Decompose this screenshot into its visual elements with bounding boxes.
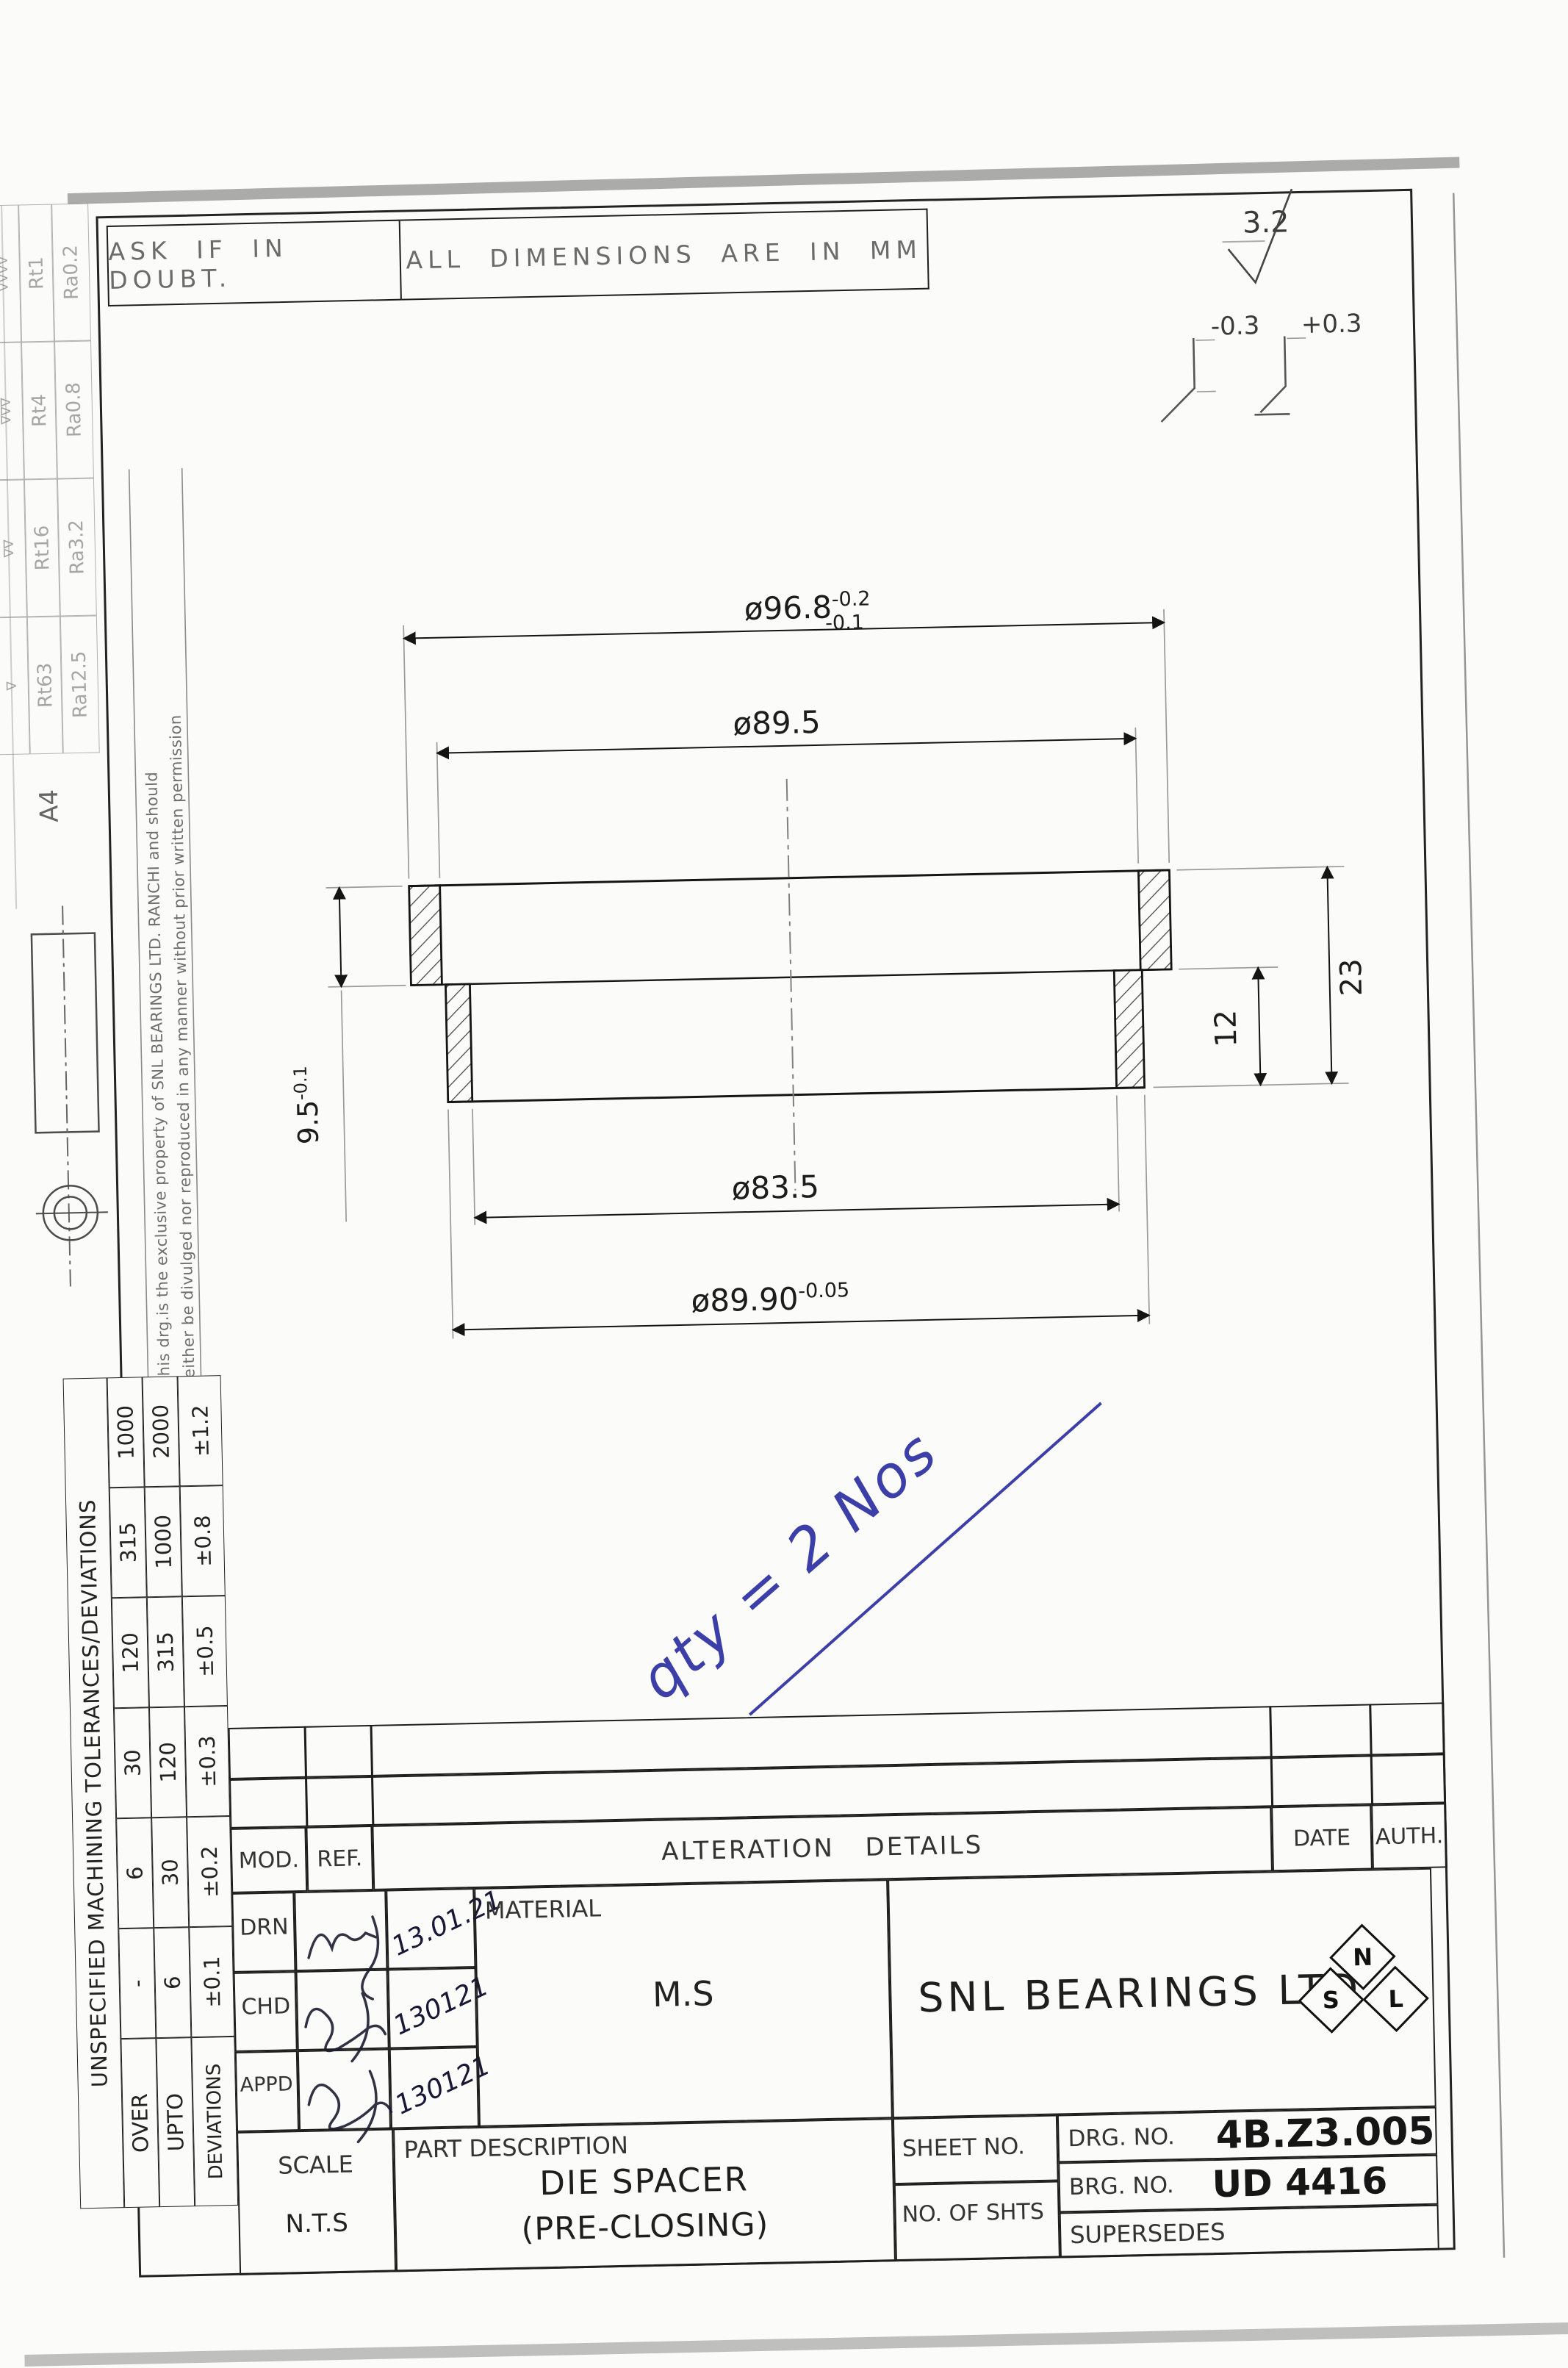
snl-logo: N S L	[1303, 1931, 1438, 2051]
sheet-size-label: A4	[34, 756, 65, 822]
tolerance-table: UNSPECIFIED MACHINING TOLERANCES/DEVIATI…	[63, 1375, 239, 2209]
sheet-no-cell: SHEET NO.	[893, 2114, 1059, 2184]
over-value: -	[118, 1928, 156, 2039]
rt-value: Rt4	[21, 342, 57, 480]
finish-mark: ∇∇∇∇	[0, 205, 21, 343]
chd-label: CHD	[241, 1993, 295, 2020]
over-value: 120	[112, 1597, 149, 1708]
scale-box: SCALE N.T.S	[237, 2128, 396, 2275]
logo-letter-s: S	[1323, 1986, 1340, 2014]
chd-date-cell: 130121	[387, 1967, 477, 2048]
ra-value: Ra3.2	[57, 478, 97, 616]
chd-signature-cell	[296, 1970, 389, 2051]
scale-label: SCALE	[238, 2130, 393, 2199]
upto-value: 30	[151, 1817, 189, 1928]
drn-date-cell: 13.01.21	[386, 1888, 475, 1969]
mod-header-cell: MOD.	[230, 1827, 307, 1893]
rt-value: Rt63	[27, 616, 63, 754]
header-ask-cell: ASK IF IN DOUBT.	[107, 220, 402, 306]
registration-marks	[29, 905, 109, 1287]
finish-mark: ∇	[0, 617, 30, 755]
no-of-shts-cell: NO. OF SHTS	[894, 2181, 1060, 2261]
registration-circle-inner	[54, 1196, 87, 1230]
upto-value: 6	[154, 1927, 191, 2038]
over-value: 315	[109, 1487, 147, 1598]
chd-role-cell: CHD	[234, 1971, 298, 2052]
deviation-value: ±0.5	[182, 1596, 228, 1707]
material-value: M.S	[476, 1916, 890, 2072]
appd-label: APPD	[240, 2073, 297, 2097]
registration-rect	[32, 933, 99, 1133]
over-value: 6	[116, 1818, 154, 1929]
deviations-label: DEVIATIONS	[191, 2037, 238, 2206]
logo-letter-l: L	[1388, 1985, 1403, 2013]
ra-value: Ra0.2	[51, 204, 91, 342]
no-of-shts-label: NO. OF SHTS	[902, 2199, 1058, 2228]
deviation-value: ±0.8	[180, 1485, 226, 1596]
upto-label: UPTO	[156, 2037, 195, 2207]
part-description-box: PART DESCRIPTION DIE SPACER (PRE-CLOSING…	[393, 2118, 896, 2272]
drawing-sheet: ASK IF IN DOUBT. ALL DIMENSIONS ARE IN M…	[0, 0, 1568, 2368]
over-value: 1000	[107, 1377, 145, 1488]
chd-date-handwritten: 130121	[389, 1978, 478, 2042]
material-box: MATERIAL M.S	[474, 1879, 893, 2127]
drg-no-label: DRG. NO.	[1068, 2123, 1175, 2152]
deviation-value: ±1.2	[178, 1375, 223, 1486]
supersedes-cell: SUPERSEDES	[1060, 2205, 1439, 2258]
drg-no-cell: DRG. NO. 4B.Z3.005	[1057, 2107, 1437, 2163]
upto-value: 2000	[143, 1376, 180, 1487]
deviation-value: ±0.3	[184, 1706, 230, 1817]
over-label: OVER	[121, 2038, 159, 2208]
finish-mark: ∇∇	[0, 479, 27, 617]
drg-no-value: 4B.Z3.005	[1215, 2109, 1435, 2157]
scale-value: N.T.S	[240, 2196, 394, 2250]
scanned-engineering-drawing: { "header": { "ask_note": "ASK IF IN DOU…	[0, 0, 1568, 2352]
bottom-scan-band	[24, 2322, 1568, 2367]
upto-value: 120	[149, 1707, 187, 1818]
deviation-value: ±0.1	[189, 1926, 234, 2037]
brg-no-value: UD 4416	[1212, 2159, 1388, 2206]
auth-header-cell: AUTH.	[1371, 1803, 1447, 1869]
registration-centerline	[62, 905, 71, 1286]
drn-signature-cell	[294, 1890, 387, 1972]
brg-no-cell: BRG. NO. UD 4416	[1058, 2155, 1438, 2213]
finish-reference-table: ∇ ∇∇ ∇∇∇ ∇∇∇∇ Rt63 Rt16 Rt4 Rt1 Ra12.5 R…	[0, 204, 100, 756]
part-variant: (PRE-CLOSING)	[396, 2197, 893, 2256]
registration-crosshair	[36, 1212, 108, 1213]
registration-circle-outer	[43, 1185, 98, 1241]
all-dimensions-label: ALL DIMENSIONS ARE IN MM	[406, 234, 922, 274]
sheet-no-label: SHEET NO.	[902, 2133, 1057, 2162]
appd-date-cell: 130121	[389, 2047, 479, 2128]
brg-no-label: BRG. NO.	[1069, 2172, 1174, 2200]
supersedes-label: SUPERSEDES	[1070, 2218, 1226, 2249]
sheet-outer-edge-right	[1453, 193, 1504, 2258]
ref-header-cell: REF.	[306, 1826, 373, 1892]
deviation-value: ±0.2	[187, 1816, 232, 1927]
ra-value: Ra12.5	[60, 615, 100, 753]
drn-date-handwritten: 13.01.21	[387, 1899, 476, 1962]
upto-value: 1000	[145, 1486, 182, 1597]
upto-value: 315	[147, 1596, 184, 1707]
rt-value: Rt1	[18, 204, 54, 342]
rt-value: Rt16	[24, 479, 60, 617]
drn-role-cell: DRN	[231, 1892, 295, 1973]
header-units-cell: ALL DIMENSIONS ARE IN MM	[400, 209, 929, 301]
date-header-cell: DATE	[1271, 1804, 1373, 1871]
appd-date-handwritten: 130121	[391, 2058, 480, 2121]
ra-value: Ra0.8	[54, 340, 94, 478]
logo-letter-n: N	[1353, 1942, 1373, 1971]
ask-if-in-doubt-label: ASK IF IN DOUBT.	[108, 232, 400, 295]
drn-label: DRN	[240, 1914, 294, 1941]
appd-role-cell: APPD	[235, 2051, 299, 2132]
over-value: 30	[114, 1707, 151, 1818]
appd-signature-cell	[298, 2049, 391, 2131]
finish-mark: ∇∇∇	[0, 342, 24, 480]
